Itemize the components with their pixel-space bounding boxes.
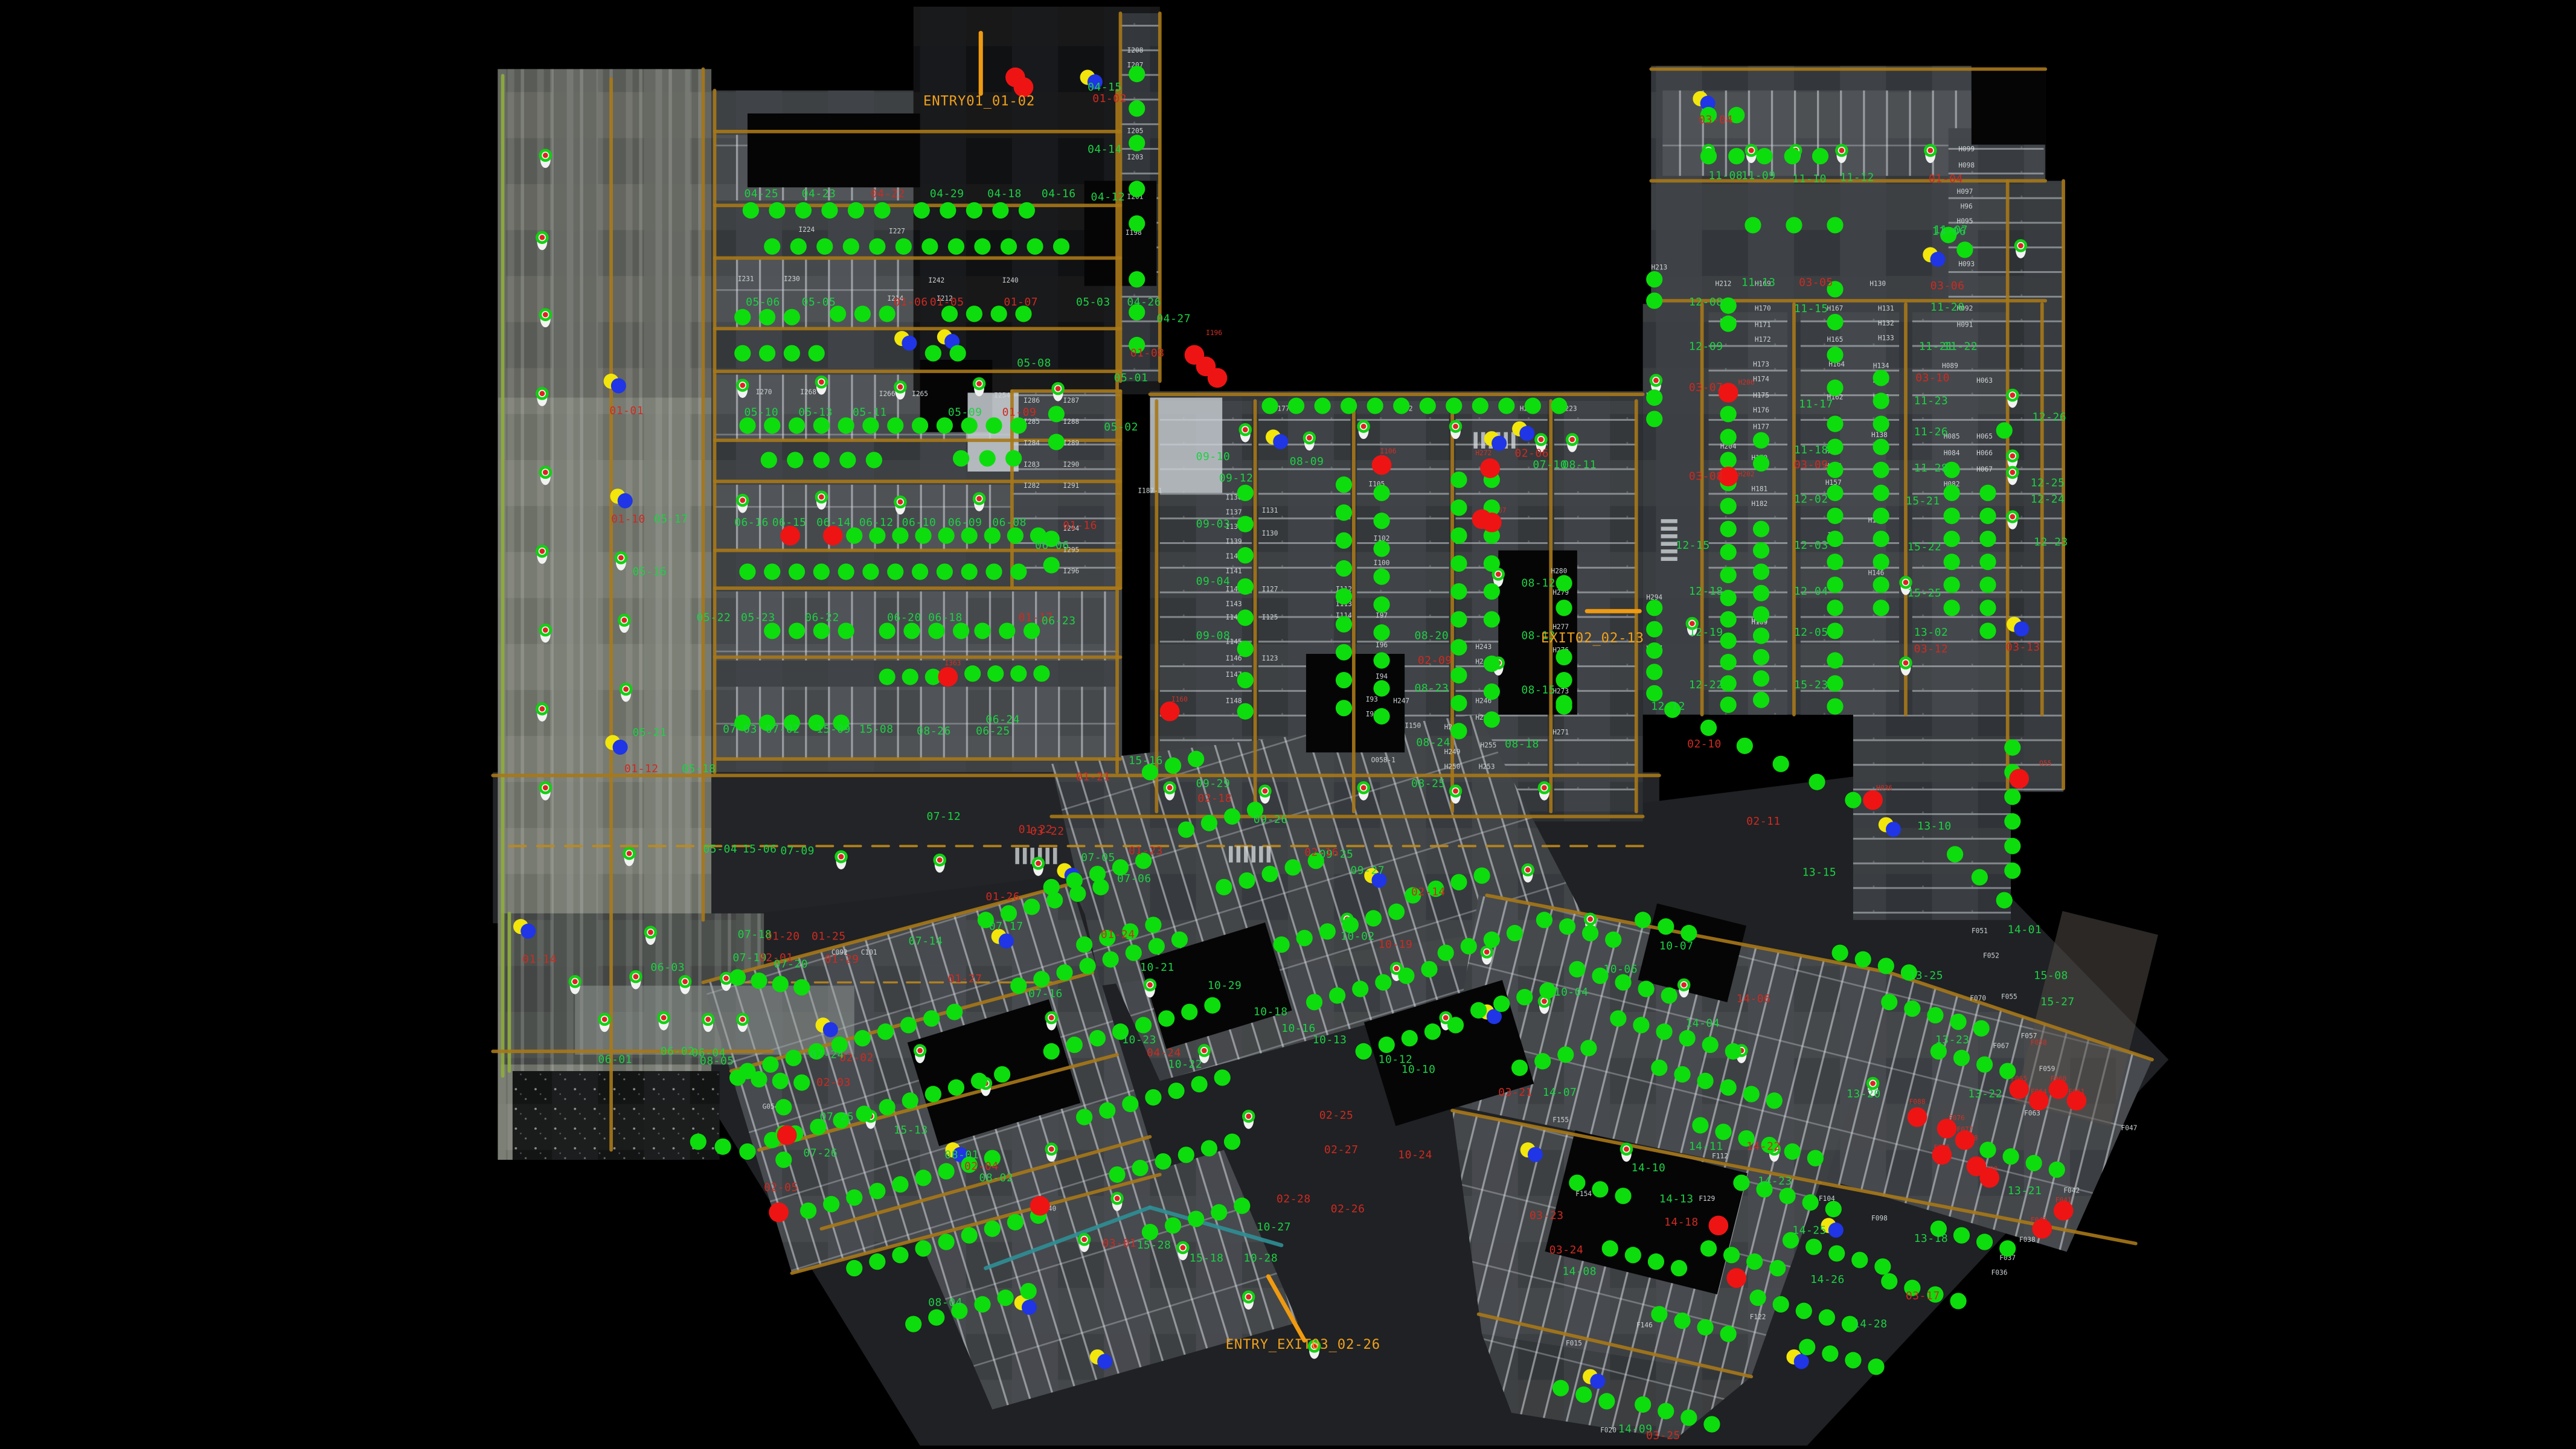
stall-sensor-marker — [1359, 421, 1369, 439]
vehicle-dot-occupied — [1214, 1069, 1231, 1086]
stall-id-label: I296 — [1063, 568, 1079, 575]
camera-id-label: 01-14 — [522, 953, 557, 965]
lit-patch — [1150, 398, 1222, 493]
vehicle-dot-alert — [1979, 1168, 1999, 1188]
stall-id-label: I93 — [1366, 696, 1378, 703]
vehicle-dot-occupied — [1680, 1410, 1697, 1426]
camera-id-label: 01-16 — [1063, 519, 1097, 532]
sensor-core-icon — [2018, 243, 2023, 249]
camera-id-label: 10-07 — [1659, 940, 1694, 953]
stall-id-label: H165 — [1827, 336, 1844, 344]
sensor-core-icon — [2010, 514, 2015, 519]
vehicle-dot-occupied — [1766, 1092, 1783, 1108]
vehicle-dot-occupied — [921, 238, 938, 255]
vehicle-dot-occupied — [762, 1057, 778, 1073]
vehicle-dot-occupied — [915, 1240, 931, 1256]
camera-id-label: 09-08 — [1196, 630, 1231, 642]
vehicle-dot-occupied — [1753, 606, 1769, 622]
stall-id-label: I291 — [1063, 482, 1079, 490]
sensor-core-icon — [1049, 1147, 1054, 1152]
vehicle-dot-occupied — [1373, 597, 1389, 613]
camera-id-label: 14-13 — [1659, 1193, 1694, 1206]
vehicle-dot-occupied — [1674, 1066, 1690, 1083]
stall-id-label: F098 — [1871, 1215, 1888, 1223]
vehicle-dot-occupied — [854, 1030, 871, 1046]
vehicle-dot-occupied — [892, 1176, 908, 1192]
unmapped-void — [748, 114, 920, 187]
sensor-core-icon — [1870, 1081, 1876, 1086]
vehicle-dot-occupied — [1373, 485, 1389, 501]
sensor-core-icon — [539, 235, 545, 240]
vehicle-dot-occupied — [1972, 869, 1988, 885]
camera-id-label: 15-06 — [743, 843, 777, 856]
camera-id-label: 11-15 — [1794, 302, 1828, 315]
camera-id-label: 13-15 — [1802, 866, 1837, 878]
vehicle-dot-occupied — [862, 417, 879, 433]
vehicle-dot-occupied — [1556, 672, 1572, 688]
camera-id-label: 08-05 — [700, 1055, 734, 1067]
vehicle-dot-occupied — [948, 238, 964, 255]
sensor-core-icon — [1246, 1114, 1251, 1119]
sensor-core-icon — [819, 494, 824, 500]
vehicle-dot-occupied — [938, 1233, 954, 1250]
vehicle-dot-occupied — [1745, 217, 1761, 233]
vehicle-dot-occupied — [992, 202, 1008, 219]
sensor-core-icon — [937, 857, 943, 863]
vehicle-dot-occupied — [961, 528, 978, 544]
gateway-blue-icon — [2014, 621, 2029, 636]
camera-id-label: 01-06 — [894, 296, 928, 309]
stall-id-label: I94 — [1376, 673, 1388, 680]
stall-lines — [1708, 312, 1787, 715]
stall-sensor-marker — [1901, 658, 1911, 676]
vehicle-dot-occupied — [1484, 932, 1500, 948]
stall-id-label: H173 — [1753, 360, 1769, 368]
vehicle-dot-alert — [2029, 1091, 2049, 1111]
stall-id-label: H171 — [1755, 321, 1771, 329]
vehicle-dot-occupied — [925, 345, 941, 362]
vehicle-dot-occupied — [1336, 476, 1352, 493]
vehicle-dot-occupied — [1188, 751, 1204, 767]
sensor-core-icon — [819, 379, 824, 385]
vehicle-dot-occupied — [1976, 1057, 1993, 1073]
stall-id-label: I100 — [1374, 559, 1390, 567]
vehicle-dot-occupied — [2049, 1162, 2065, 1178]
vehicle-dot-occupied — [1832, 945, 1848, 961]
stall-sensor-marker — [974, 379, 984, 396]
stall-id-label: F059 — [2039, 1065, 2055, 1073]
vehicle-dot-occupied — [1007, 528, 1024, 544]
vehicle-dot-occupied — [940, 202, 956, 219]
camera-id-label: 07-14 — [909, 935, 943, 948]
vehicle-dot-occupied — [1238, 872, 1255, 889]
vehicle-dot-occupied — [1511, 1060, 1528, 1076]
sensor-core-icon — [1525, 867, 1531, 872]
vehicle-dot-occupied — [1450, 472, 1467, 488]
sensor-core-icon — [1496, 572, 1501, 577]
vehicle-dot-occupied — [1043, 1043, 1060, 1060]
camera-id-label: 02-03 — [816, 1076, 851, 1089]
camera-id-label: 08-18 — [1505, 738, 1539, 750]
crosswalk-bar — [1237, 846, 1241, 862]
stall-id-label: F058 — [2031, 1039, 2047, 1047]
parking-map-canvas[interactable]: I208I207I205I203I201I198I196I214I212I224… — [0, 0, 2576, 1449]
vehicle-dot-occupied — [974, 622, 990, 639]
vehicle-dot-occupied — [1066, 872, 1083, 889]
vehicle-dot-occupied — [795, 202, 812, 219]
camera-id-label: 05-23 — [741, 612, 775, 624]
parking-occupancy-map-view[interactable]: I208I207I205I203I201I198I196I214I212I224… — [0, 0, 2576, 1449]
camera-id-label: 12-26 — [2032, 411, 2066, 424]
vehicle-dot-occupied — [1336, 588, 1352, 604]
camera-id-label: 04-23 — [802, 188, 836, 200]
gateway-blue-icon — [1930, 252, 1946, 267]
camera-id-label: 06-15 — [772, 516, 807, 529]
vehicle-dot-occupied — [1827, 380, 1843, 396]
camera-id-label: 06-03 — [650, 961, 685, 974]
sensor-core-icon — [1927, 148, 1933, 153]
vehicle-dot-alert — [2009, 769, 2029, 788]
vehicle-dot-occupied — [1024, 898, 1040, 915]
camera-id-label: 04-15 — [1088, 81, 1122, 94]
vehicle-dot-occupied — [1976, 1233, 1993, 1250]
vehicle-dot-occupied — [1733, 1174, 1749, 1191]
vehicle-dot-occupied — [961, 1227, 978, 1244]
camera-id-label: 07-16 — [1028, 988, 1063, 1000]
camera-id-label: 11-08 — [1708, 170, 1743, 182]
vehicle-dot-occupied — [1828, 1245, 1845, 1261]
vehicle-dot-occupied — [1580, 1040, 1597, 1056]
vehicle-dot-occupied — [905, 1316, 921, 1332]
vehicle-dot-occupied — [1827, 217, 1843, 233]
vehicle-dot-occupied — [1237, 641, 1254, 657]
vehicle-dot-occupied — [928, 1310, 944, 1326]
vehicle-dot-occupied — [1237, 547, 1254, 563]
camera-id-label: 07-25 — [820, 1111, 854, 1124]
camera-id-label: 02-09 — [1418, 654, 1452, 667]
vehicle-dot-occupied — [1375, 974, 1391, 991]
camera-id-label: 14-26 — [1810, 1273, 1845, 1286]
stall-id-label: H084 — [1944, 449, 1960, 457]
camera-id-label: 14-04 — [1685, 1017, 1720, 1030]
vehicle-dot-occupied — [2004, 863, 2020, 879]
camera-id-label: 08-26 — [917, 724, 951, 737]
vehicle-dot-occupied — [953, 622, 969, 639]
vehicle-dot-occupied — [1807, 1150, 1824, 1166]
vehicle-dot-occupied — [743, 202, 759, 219]
stall-id-label: H253 — [1479, 763, 1495, 770]
stall-id-label: I125 — [1262, 613, 1278, 621]
vehicle-dot-occupied — [866, 452, 882, 468]
vehicle-dot-occupied — [843, 238, 859, 255]
camera-id-label: 06-22 — [805, 612, 839, 624]
vehicle-dot-occupied — [950, 345, 966, 362]
vehicle-dot-occupied — [1598, 1393, 1615, 1409]
vehicle-dot-occupied — [1367, 398, 1383, 414]
vehicle-dot-occupied — [823, 1196, 839, 1212]
vehicle-dot-occupied — [887, 563, 903, 580]
vehicle-dot-occupied — [1827, 698, 1843, 714]
stall-id-label: H96 — [1961, 203, 1973, 211]
vehicle-dot-occupied — [1285, 859, 1301, 875]
vehicle-dot-occupied — [751, 973, 767, 989]
vehicle-dot-alert — [1160, 702, 1180, 721]
vehicle-dot-occupied — [1773, 1296, 1789, 1313]
vehicle-dot-occupied — [1424, 1023, 1441, 1040]
vehicle-dot-occupied — [1996, 422, 2013, 438]
vehicle-dot-occupied — [1827, 577, 1843, 593]
vehicle-dot-occupied — [1129, 216, 1145, 232]
sensor-core-icon — [1246, 1294, 1251, 1300]
camera-id-label: 09-12 — [1219, 472, 1254, 484]
camera-id-label: 01-27 — [948, 973, 982, 985]
vehicle-dot-occupied — [879, 305, 896, 322]
vehicle-dot-occupied — [1592, 1181, 1608, 1197]
vehicle-dot-occupied — [1769, 1260, 1786, 1276]
stall-id-label: I123 — [1262, 654, 1278, 662]
sensor-core-icon — [1624, 1147, 1629, 1152]
vehicle-dot-occupied — [1605, 932, 1621, 948]
vehicle-dot-occupied — [974, 238, 990, 255]
vehicle-dot-occupied — [1753, 521, 1769, 537]
stall-id-label: F154 — [1575, 1190, 1592, 1198]
vehicle-dot-occupied — [848, 202, 864, 219]
camera-id-label: 03-21 — [1498, 1086, 1533, 1099]
sensor-core-icon — [1443, 1015, 1449, 1020]
vehicle-dot-occupied — [1171, 932, 1188, 948]
vehicle-dot-alert — [938, 667, 958, 687]
camera-id-label: 05-11 — [853, 406, 887, 419]
stall-id-label: I227 — [889, 228, 905, 235]
stall-sensor-marker — [1450, 786, 1461, 804]
sensor-core-icon — [543, 470, 548, 475]
camera-id-label: 04-16 — [1042, 188, 1076, 200]
vehicle-dot-occupied — [2004, 739, 2020, 755]
sensor-core-icon — [1903, 661, 1909, 666]
vehicle-dot-occupied — [1692, 1117, 1708, 1133]
gateway-blue-icon — [1528, 1147, 1543, 1162]
vehicle-dot-occupied — [1715, 1124, 1731, 1140]
vehicle-dot-occupied — [985, 417, 1002, 433]
vehicle-dot-occupied — [879, 668, 896, 685]
vehicle-dot-occupied — [1288, 398, 1304, 414]
camera-id-label: 12-25 — [2031, 477, 2065, 490]
camera-id-label: 12-23 — [2034, 536, 2068, 548]
camera-id-label: 12-24 — [2031, 493, 2065, 506]
vehicle-dot-occupied — [1089, 1030, 1106, 1046]
camera-id-label: 07-17 — [989, 920, 1024, 933]
camera-id-label: 14-11 — [1689, 1140, 1723, 1153]
vehicle-dot-occupied — [1881, 994, 1897, 1010]
sensor-core-icon — [1690, 621, 1695, 626]
sensor-core-icon — [2010, 392, 2015, 398]
sensor-core-icon — [618, 555, 624, 560]
stall-id-label: I160 — [1171, 696, 1188, 703]
stall-id-label: I143 — [1226, 600, 1242, 608]
vehicle-dot-occupied — [928, 622, 944, 639]
sensor-core-icon — [705, 1017, 711, 1022]
vehicle-dot-occupied — [1373, 513, 1389, 529]
vehicle-dot-occupied — [1507, 925, 1523, 941]
stall-sensor-marker — [1450, 421, 1461, 439]
sensor-core-icon — [740, 1017, 745, 1022]
vehicle-dot-alert — [2049, 1080, 2069, 1099]
vehicle-dot-occupied — [775, 1151, 792, 1168]
vehicle-dot-occupied — [937, 563, 953, 580]
stall-id-label: I283 — [1024, 461, 1040, 469]
vehicle-dot-occupied — [2002, 1148, 2019, 1165]
vehicle-dot-occupied — [1646, 664, 1662, 680]
stall-id-label: F055 — [2001, 993, 2017, 1000]
vehicle-dot-occupied — [1020, 1283, 1037, 1299]
sensor-core-icon — [539, 706, 545, 712]
camera-id-label: 08-20 — [1414, 630, 1449, 642]
vehicle-dot-occupied — [2004, 788, 2020, 805]
camera-id-label: 10-27 — [1257, 1221, 1291, 1233]
vehicle-dot-occupied — [1720, 521, 1737, 537]
vehicle-dot-occupied — [1237, 485, 1254, 501]
vehicle-dot-occupied — [1743, 1086, 1760, 1102]
vehicle-dot-occupied — [985, 563, 1002, 580]
vehicle-dot-occupied — [953, 450, 969, 467]
vehicle-dot-occupied — [1720, 611, 1737, 627]
vehicle-dot-occupied — [1484, 711, 1500, 728]
camera-id-label: 12-09 — [1689, 341, 1723, 353]
stall-sensor-marker — [540, 782, 551, 800]
vehicle-dot-occupied — [1703, 1416, 1720, 1432]
camera-id-label: 03-09 — [1794, 459, 1828, 472]
stall-sensor-marker — [540, 150, 551, 168]
camera-id-label: 14-08 — [1562, 1265, 1597, 1278]
sensor-core-icon — [2010, 453, 2015, 459]
stall-id-label: H271 — [1552, 728, 1569, 736]
camera-id-label: 04-24 — [1147, 1047, 1181, 1060]
stall-id-label: H175 — [1753, 392, 1769, 400]
stall-id-label: H132 — [1878, 319, 1894, 327]
stall-id-label: I231 — [738, 275, 754, 283]
vehicle-dot-occupied — [1274, 936, 1290, 953]
vehicle-dot-occupied — [1878, 958, 1894, 974]
vehicle-dot-occupied — [1656, 1023, 1672, 1040]
vehicle-dot-occupied — [1756, 148, 1772, 164]
vehicle-dot-occupied — [1646, 389, 1662, 406]
vehicle-dot-occupied — [1066, 1037, 1083, 1053]
vehicle-dot-occupied — [1165, 757, 1181, 773]
camera-id-label: 04-25 — [744, 188, 778, 200]
stall-sensor-marker — [1079, 1234, 1089, 1252]
vehicle-dot-occupied — [896, 238, 912, 255]
vehicle-dot-occupied — [971, 1073, 987, 1089]
camera-id-label: 08-23 — [1414, 682, 1449, 695]
camera-id-label: 05-09 — [948, 406, 982, 419]
sensor-core-icon — [1484, 949, 1490, 955]
vehicle-dot-occupied — [1646, 621, 1662, 638]
camera-id-label: 13-18 — [1914, 1232, 1949, 1245]
camera-id-label: 06-01 — [598, 1053, 632, 1066]
camera-id-label: 15-27 — [2040, 996, 2075, 1008]
sensor-core-icon — [1839, 148, 1845, 153]
vehicle-dot-occupied — [1944, 577, 1960, 593]
vehicle-dot-occupied — [869, 1253, 885, 1270]
vehicle-dot-occupied — [1079, 958, 1095, 974]
stall-id-label: I97 — [1376, 612, 1388, 619]
vehicle-dot-occupied — [1697, 1319, 1713, 1335]
vehicle-dot-occupied — [1720, 498, 1737, 514]
vehicle-dot-occupied — [793, 1075, 810, 1091]
camera-id-label: 01-22 — [1019, 824, 1053, 836]
camera-id-label: 13-10 — [1917, 820, 1952, 833]
vehicle-dot-occupied — [813, 452, 830, 468]
camera-id-label: 12-05 — [1794, 626, 1828, 639]
stall-sensor-marker — [540, 467, 551, 485]
camera-id-label: 03-13 — [2006, 641, 2040, 654]
vehicle-dot-occupied — [1438, 945, 1454, 961]
vehicle-dot-occupied — [1779, 1188, 1795, 1204]
vehicle-dot-occupied — [1450, 695, 1467, 711]
vehicle-dot-occupied — [966, 202, 982, 219]
vehicle-dot-occupied — [846, 1260, 862, 1276]
stall-sensor-marker — [537, 546, 547, 564]
vehicle-dot-occupied — [1746, 1253, 1763, 1270]
vehicle-dot-occupied — [938, 528, 954, 544]
vehicle-dot-occupied — [800, 1203, 816, 1219]
camera-id-label: 01-09 — [1002, 406, 1037, 419]
vehicle-dot-occupied — [1398, 968, 1414, 984]
stall-sensor-marker — [1567, 435, 1577, 452]
vehicle-dot-occupied — [1950, 1014, 1966, 1030]
vehicle-dot-occupied — [1315, 398, 1331, 414]
stall-id-label: I106 — [1380, 447, 1397, 455]
camera-id-label: 08-11 — [1562, 459, 1597, 472]
vehicle-dot-occupied — [1979, 1142, 1996, 1158]
vehicle-dot-occupied — [1126, 945, 1142, 961]
vehicle-dot-occupied — [838, 622, 854, 639]
vehicle-dot-occupied — [869, 1183, 885, 1199]
vehicle-dot-occupied — [739, 1144, 755, 1160]
camera-id-label: 12-18 — [1689, 585, 1723, 598]
stall-id-label: I131 — [1262, 507, 1278, 514]
camera-id-label: 09-27 — [1350, 865, 1385, 877]
vehicle-dot-occupied — [1010, 417, 1027, 433]
vehicle-dot-occupied — [1132, 1160, 1149, 1176]
stall-sensor-marker — [1177, 1243, 1188, 1260]
camera-id-label: 06-10 — [902, 516, 937, 529]
vehicle-dot-occupied — [1646, 600, 1662, 616]
vehicle-dot-occupied — [838, 563, 854, 580]
vehicle-dot-occupied — [769, 202, 785, 219]
crosswalk-bar — [1473, 432, 1478, 449]
camera-id-label: 15-18 — [1190, 1252, 1224, 1265]
stall-id-label: I146 — [1226, 654, 1242, 662]
vehicle-dot-occupied — [1720, 1326, 1737, 1342]
vehicle-dot-occupied — [1851, 1252, 1868, 1268]
vehicle-dot-occupied — [1873, 416, 1889, 432]
stall-sensor-marker — [619, 615, 629, 633]
sensor-core-icon — [543, 627, 548, 633]
sensor-core-icon — [602, 1017, 607, 1022]
vehicle-dot-occupied — [1720, 544, 1737, 560]
vehicle-dot-occupied — [1470, 1002, 1487, 1019]
crosswalk-bar — [1045, 848, 1049, 864]
vehicle-dot-occupied — [874, 202, 890, 219]
stall-sensor-marker — [1033, 858, 1043, 875]
gateway-blue-icon — [521, 924, 536, 939]
gateway-blue-icon — [1519, 426, 1534, 441]
camera-id-label: 15-08 — [859, 723, 894, 736]
camera-id-label: 06-09 — [948, 516, 982, 529]
camera-id-label: 03-04 — [1699, 114, 1733, 126]
stall-sensor-marker — [895, 497, 905, 514]
